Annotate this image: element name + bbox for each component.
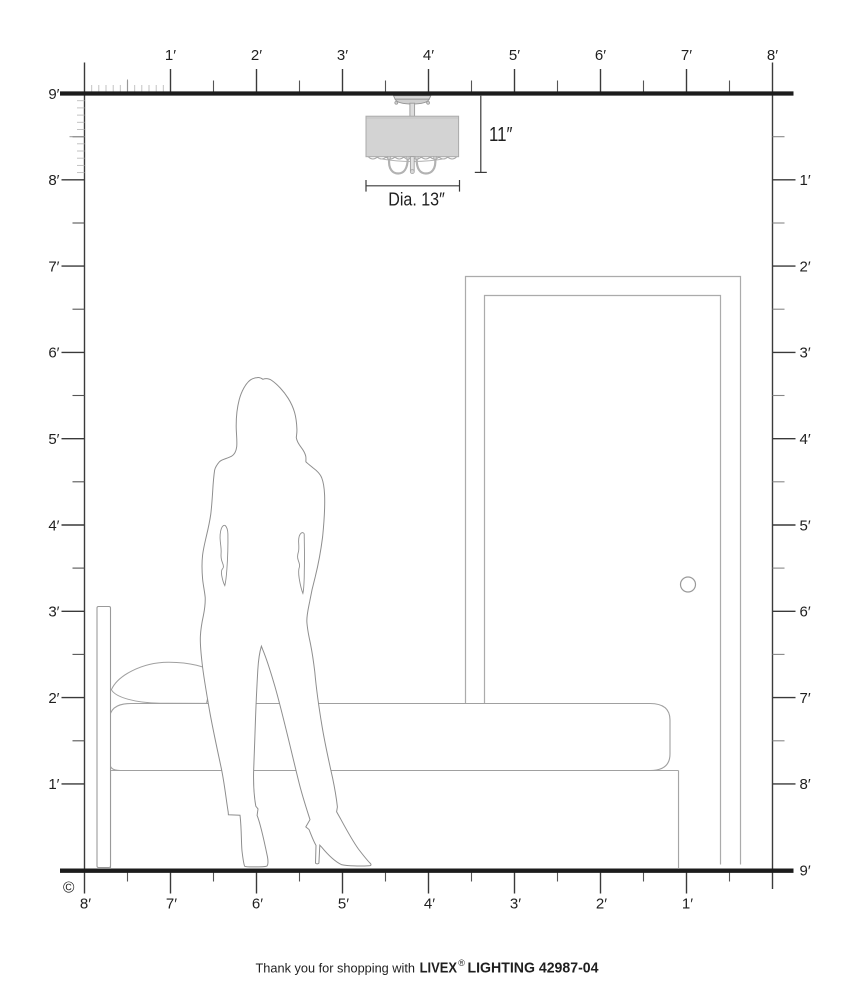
svg-text:4′: 4′	[48, 517, 59, 534]
svg-text:8′: 8′	[48, 172, 59, 189]
svg-text:®: ®	[458, 958, 465, 968]
svg-text:8′: 8′	[800, 776, 811, 793]
svg-text:4′: 4′	[424, 896, 435, 913]
svg-text:9′: 9′	[48, 86, 59, 103]
svg-text:2′: 2′	[48, 690, 59, 707]
svg-text:5′: 5′	[48, 431, 59, 448]
svg-text:7′: 7′	[48, 258, 59, 275]
svg-text:4′: 4′	[800, 431, 811, 448]
svg-text:9′: 9′	[800, 863, 811, 880]
svg-text:3′: 3′	[510, 896, 521, 913]
svg-text:1′: 1′	[800, 172, 811, 189]
svg-text:Dia. 13″: Dia. 13″	[388, 190, 445, 210]
svg-text:6′: 6′	[48, 345, 59, 362]
svg-text:©: ©	[63, 880, 75, 897]
svg-text:6′: 6′	[595, 47, 606, 64]
svg-text:5′: 5′	[800, 517, 811, 534]
svg-text:1′: 1′	[165, 47, 176, 64]
svg-text:7′: 7′	[800, 690, 811, 707]
svg-text:1′: 1′	[682, 896, 693, 913]
svg-text:LIVEX: LIVEX	[420, 960, 458, 977]
svg-text:6′: 6′	[800, 604, 811, 621]
svg-text:11″: 11″	[489, 123, 513, 146]
svg-text:7′: 7′	[681, 47, 692, 64]
svg-text:2′: 2′	[251, 47, 262, 64]
svg-text:8′: 8′	[80, 896, 91, 913]
svg-text:3′: 3′	[48, 604, 59, 621]
svg-text:Thank you for shopping with: Thank you for shopping with	[256, 961, 416, 976]
svg-text:5′: 5′	[509, 47, 520, 64]
svg-text:3′: 3′	[337, 47, 348, 64]
svg-text:2′: 2′	[596, 896, 607, 913]
svg-text:6′: 6′	[252, 896, 263, 913]
svg-text:2′: 2′	[800, 258, 811, 275]
svg-text:LIGHTING 42987-04: LIGHTING 42987-04	[468, 960, 600, 977]
svg-text:3′: 3′	[800, 345, 811, 362]
svg-text:1′: 1′	[48, 776, 59, 793]
svg-text:8′: 8′	[767, 47, 778, 64]
svg-text:5′: 5′	[338, 896, 349, 913]
svg-text:4′: 4′	[423, 47, 434, 64]
svg-text:7′: 7′	[166, 896, 177, 913]
